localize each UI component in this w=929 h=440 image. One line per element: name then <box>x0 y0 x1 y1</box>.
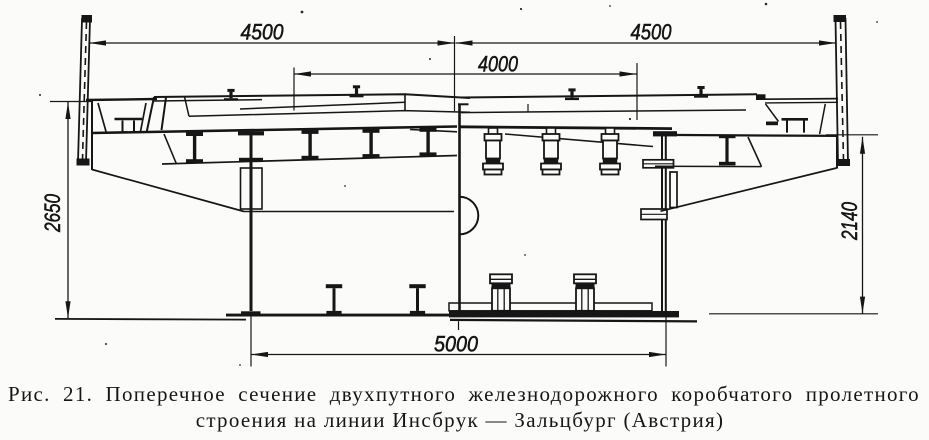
svg-text:5000: 5000 <box>434 332 478 357</box>
svg-text:4000: 4000 <box>478 52 518 77</box>
svg-text:2140: 2140 <box>837 202 862 241</box>
svg-text:4500: 4500 <box>241 20 284 45</box>
svg-text:4500: 4500 <box>631 20 672 45</box>
svg-text:2650: 2650 <box>40 194 65 233</box>
